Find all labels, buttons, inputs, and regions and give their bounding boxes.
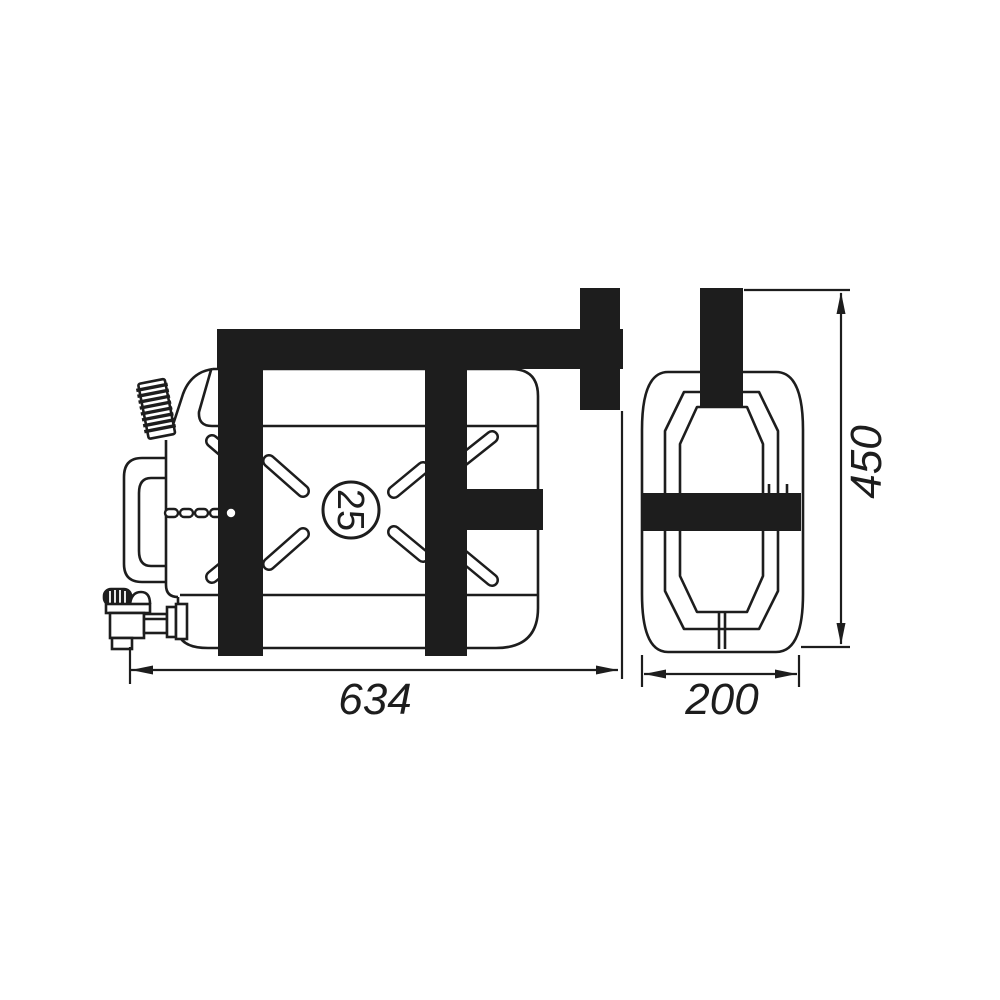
carry-handle — [124, 458, 166, 582]
bracket-side-cross-strap — [465, 489, 543, 530]
arrowhead-top — [837, 292, 846, 314]
technical-drawing-canvas: 25 634 — [0, 0, 1000, 1000]
dimension-height: 450 — [744, 290, 891, 647]
arrowhead-right — [775, 670, 797, 679]
bracket-top-rail — [217, 329, 623, 369]
end-view-post — [700, 288, 743, 407]
mounting-bracket — [217, 288, 801, 656]
arrowhead-right — [596, 666, 618, 675]
bottom-drain-lines — [719, 612, 725, 649]
end-view-cross-strap — [642, 493, 801, 531]
arrowhead-left — [131, 666, 153, 675]
jerrycan-mounting-drawing: 25 634 — [0, 0, 1000, 1000]
cap-chain — [165, 509, 223, 517]
filler-cap-icon — [135, 378, 177, 439]
dimension-depth: 200 — [642, 655, 799, 724]
bracket-middle-strap — [425, 369, 467, 656]
arrowhead-left — [644, 670, 666, 679]
dimension-length-value: 634 — [338, 675, 411, 724]
dimension-depth-value: 200 — [684, 675, 759, 724]
bracket-left-strap — [218, 329, 263, 656]
dimension-length: 634 — [130, 411, 622, 724]
arrowhead-bottom — [837, 623, 846, 645]
bracket-end-post — [580, 288, 620, 410]
capacity-badge-value: 25 — [329, 489, 371, 531]
chain-end-pin — [227, 509, 235, 517]
dimension-height-value: 450 — [842, 425, 891, 499]
capacity-badge: 25 — [323, 482, 379, 538]
